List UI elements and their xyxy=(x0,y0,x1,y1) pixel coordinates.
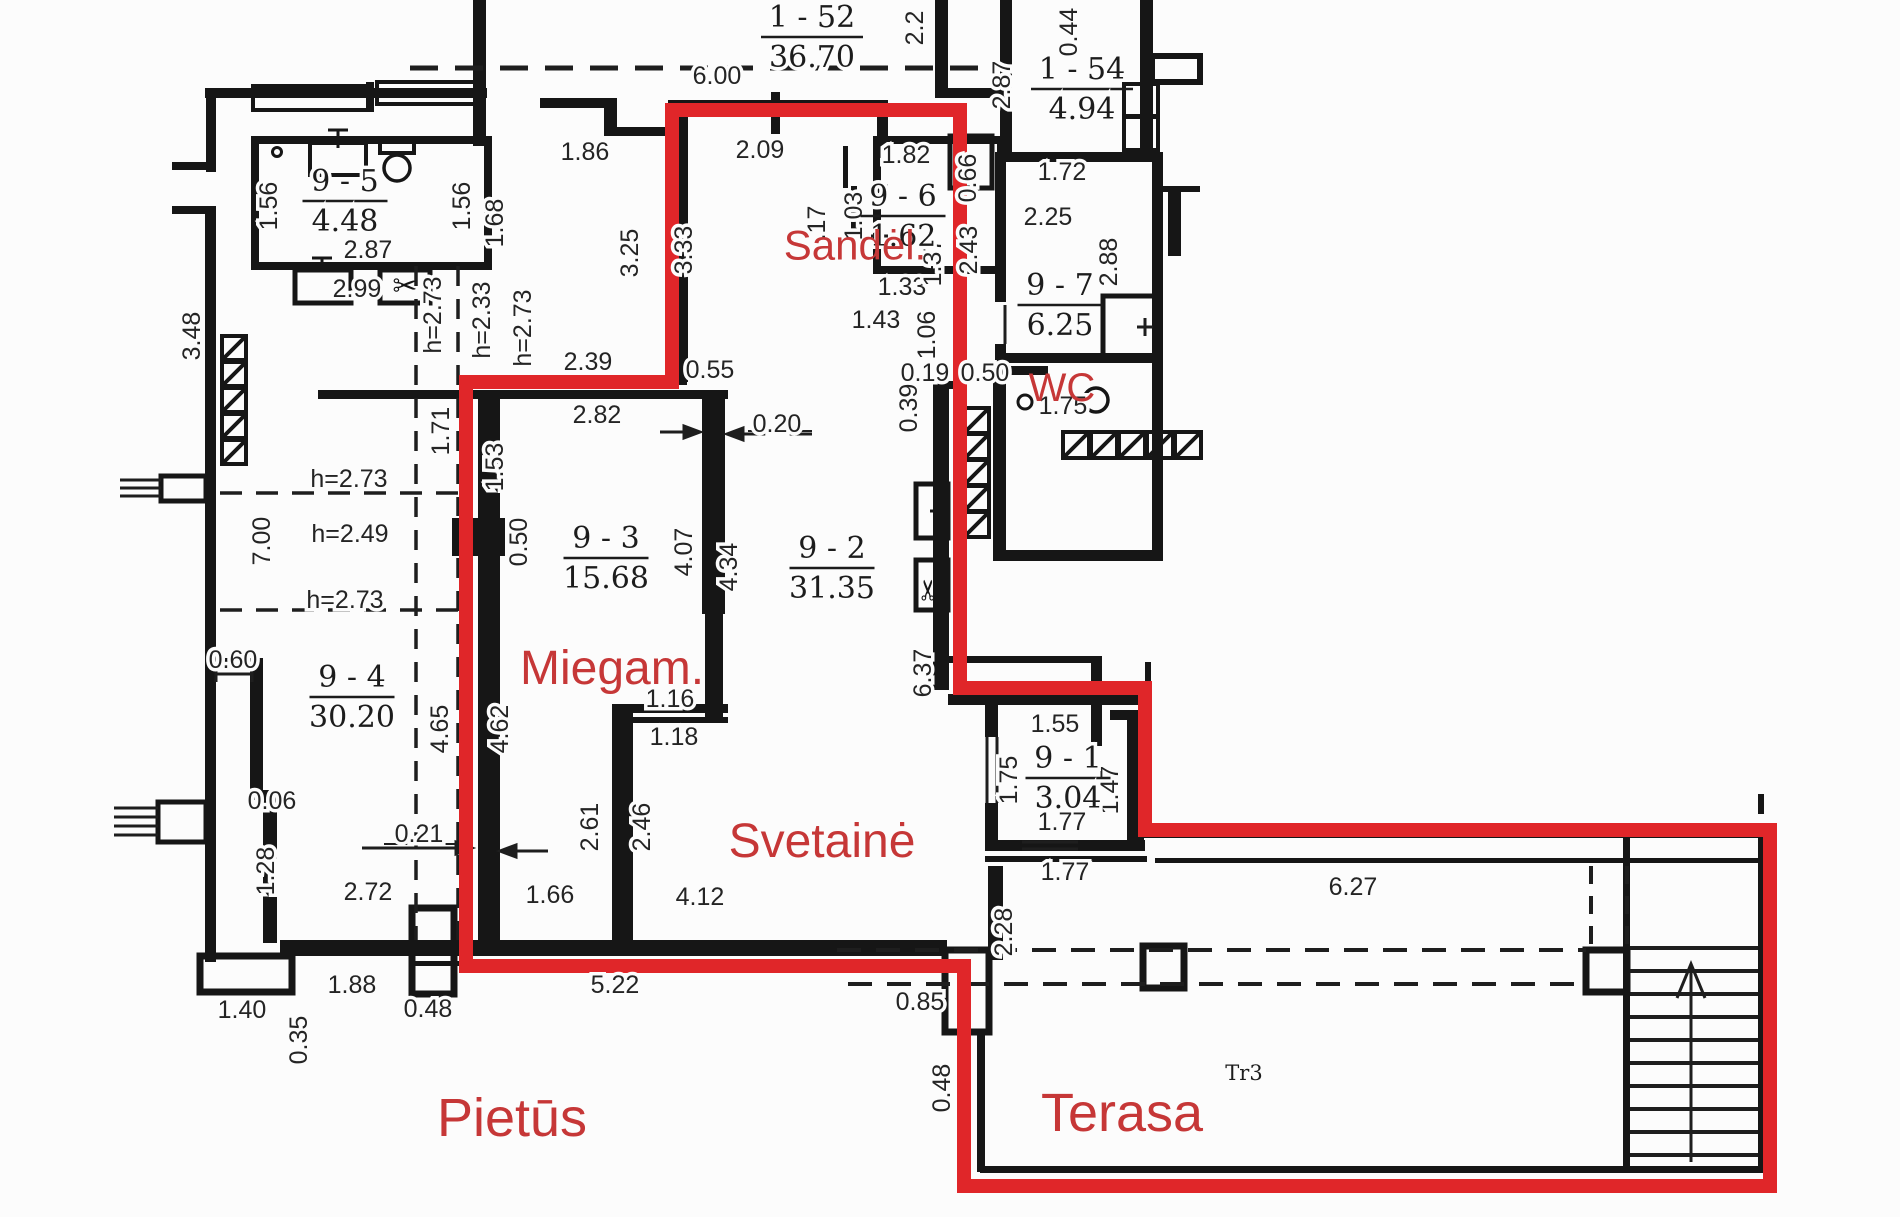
toilet-icon xyxy=(380,141,414,181)
room-area-label: 31.35 xyxy=(789,571,875,606)
room-code-label: 1 - 52 xyxy=(769,0,855,35)
radiator-icon xyxy=(114,808,158,835)
dimension-label: 2.43 xyxy=(955,226,983,275)
dimension-label: 1.71 xyxy=(427,407,455,456)
room-code-label: 9 - 2 xyxy=(798,531,865,566)
room-name-label: Terasa xyxy=(1041,1083,1204,1143)
dimension-label: 0.44 xyxy=(1055,8,1083,57)
room-code-label: 9 - 3 xyxy=(572,521,639,556)
room-code-label: 1 - 54 xyxy=(1039,52,1125,87)
terrace-post xyxy=(1586,950,1627,992)
dimension-label: 3.25 xyxy=(616,229,644,278)
dimension-label: 1.56 xyxy=(448,182,476,231)
room-area-label: 30.20 xyxy=(309,700,395,735)
dimension-label: 1.88 xyxy=(328,971,377,999)
dimension-label: 4.62 xyxy=(486,705,514,754)
dimension-label: 1.43 xyxy=(852,306,901,334)
dimension-label: 0.66 xyxy=(954,154,982,203)
shaft-column-west xyxy=(222,336,246,464)
dimension-label: 1.53 xyxy=(481,443,509,492)
dimension-label: 2.72 xyxy=(344,878,393,906)
dimension-label: 5.22 xyxy=(591,971,640,999)
dimension-label: 0.55 xyxy=(686,356,735,384)
room-area-label: 3.04 xyxy=(1035,781,1102,816)
dimension-label: 1.18 xyxy=(650,723,699,751)
dimension-label: h=2.73 xyxy=(419,276,447,353)
dimension-label: 4.07 xyxy=(670,528,698,577)
terrace-post xyxy=(1143,946,1184,988)
dimension-label: 4.65 xyxy=(426,705,454,754)
room-area-label: 36.70 xyxy=(769,40,855,75)
dimension-label: 1.56 xyxy=(255,182,283,231)
scissors-icon: ✂ xyxy=(913,578,944,601)
room-code-label: 9 - 1 xyxy=(1034,741,1101,776)
room-area-label: 6.25 xyxy=(1027,308,1094,343)
dimension-label: 7.00 xyxy=(248,517,276,566)
shaft-column-center xyxy=(964,408,989,537)
dimension-label: 6.37 xyxy=(909,649,937,698)
stairs xyxy=(1630,948,1758,1162)
dimension-label: 2.87 xyxy=(344,236,393,264)
dimension-label: 4.34 xyxy=(715,543,743,592)
dimension-label: 2.87 xyxy=(988,61,1016,110)
dimension-label: 0.50 xyxy=(505,518,533,567)
dimension-label: h=2.73 xyxy=(310,465,387,493)
room-code-label: 9 - 7 xyxy=(1026,268,1093,303)
dimension-label: 2.99 xyxy=(333,275,382,303)
dimension-label: 1.77 xyxy=(1041,858,1090,886)
dimension-label: 3.33 xyxy=(670,226,698,275)
dimension-label: 1.75 xyxy=(995,756,1023,805)
dimension-label: 2.88 xyxy=(1095,238,1123,287)
room-name-label: Pietūs xyxy=(437,1088,587,1148)
dimension-label: h=2.73 xyxy=(306,586,383,614)
shaft-row-wc xyxy=(1063,432,1201,458)
radiator-icon xyxy=(120,480,161,496)
dimension-label: 1.68 xyxy=(481,199,509,248)
dimension-label: 6.27 xyxy=(1329,873,1378,901)
dimension-label: 0.48 xyxy=(928,1064,956,1113)
dimension-label: 2.61 xyxy=(576,803,604,852)
floorplan-page: ✂ ✂ 6.001.862.091.821.722.252.872 xyxy=(0,0,1900,1217)
dimension-label: 1.28 xyxy=(252,847,280,896)
dimension-label: 1.72 xyxy=(1038,158,1087,186)
dimension-label: 6.00 xyxy=(693,62,742,90)
dimension-label: h=2.49 xyxy=(311,520,388,548)
dimension-label: 0.21 xyxy=(395,820,444,848)
dimension-label: 0.60 xyxy=(209,646,258,674)
room-name-label: Sandėl. xyxy=(784,222,926,269)
dimension-label: 1.06 xyxy=(913,311,941,360)
scissors-icon: ✂ xyxy=(392,270,417,303)
labels-layer: 6.001.862.091.821.722.252.872.991.331.43… xyxy=(178,0,1377,1148)
dimension-label: 1.82 xyxy=(882,141,931,169)
dimension-label: 2.39 xyxy=(564,348,613,376)
dimension-label: h=2.33 xyxy=(468,281,496,358)
room-name-label: Svetainė xyxy=(729,815,916,868)
dimension-label: 2.82 xyxy=(573,401,622,429)
dimension-label: 0.50 xyxy=(961,359,1010,387)
floorplan-drawing: ✂ ✂ 6.001.862.091.821.722.252.872 xyxy=(0,0,1900,1217)
annotation-label: Tr3 xyxy=(1225,1061,1262,1085)
room-code-label: 9 - 5 xyxy=(311,164,378,199)
dimension-label: 1.86 xyxy=(561,138,610,166)
dimension-label: 4.12 xyxy=(676,883,725,911)
dimension-label: 0.35 xyxy=(285,1016,313,1065)
room-code-label: 9 - 6 xyxy=(869,179,936,214)
dimension-label: 2.25 xyxy=(1024,203,1073,231)
dimension-label: 2.28 xyxy=(990,908,1018,957)
room-area-label: 4.94 xyxy=(1049,92,1116,127)
dimension-label: 3.48 xyxy=(178,312,206,361)
dimension-label: 1.40 xyxy=(218,996,267,1024)
dimension-label: 0.48 xyxy=(404,995,453,1023)
dimension-label: 1.55 xyxy=(1031,710,1080,738)
dimension-label: 1.66 xyxy=(526,881,575,909)
dimension-label: 2.09 xyxy=(736,136,785,164)
dimension-label: 2.2 xyxy=(901,11,929,46)
room-code-label: 9 - 4 xyxy=(318,660,385,695)
dimension-label: 0.39 xyxy=(895,384,923,433)
dimension-label: 2.46 xyxy=(628,803,656,852)
dimension-label: 0.19 xyxy=(901,359,950,387)
room-area-label: 4.48 xyxy=(312,204,379,239)
dimension-label: 0.85 xyxy=(896,988,945,1016)
room-name-label: Miegam. xyxy=(520,642,704,695)
dimension-label: 0.20 xyxy=(753,410,802,438)
dimension-label: 0.06 xyxy=(248,787,297,815)
room-name-label: WC xyxy=(1029,366,1096,410)
room-area-label: 15.68 xyxy=(563,561,649,596)
dimension-label: h=2.73 xyxy=(509,289,537,366)
valve-icon xyxy=(273,148,282,157)
